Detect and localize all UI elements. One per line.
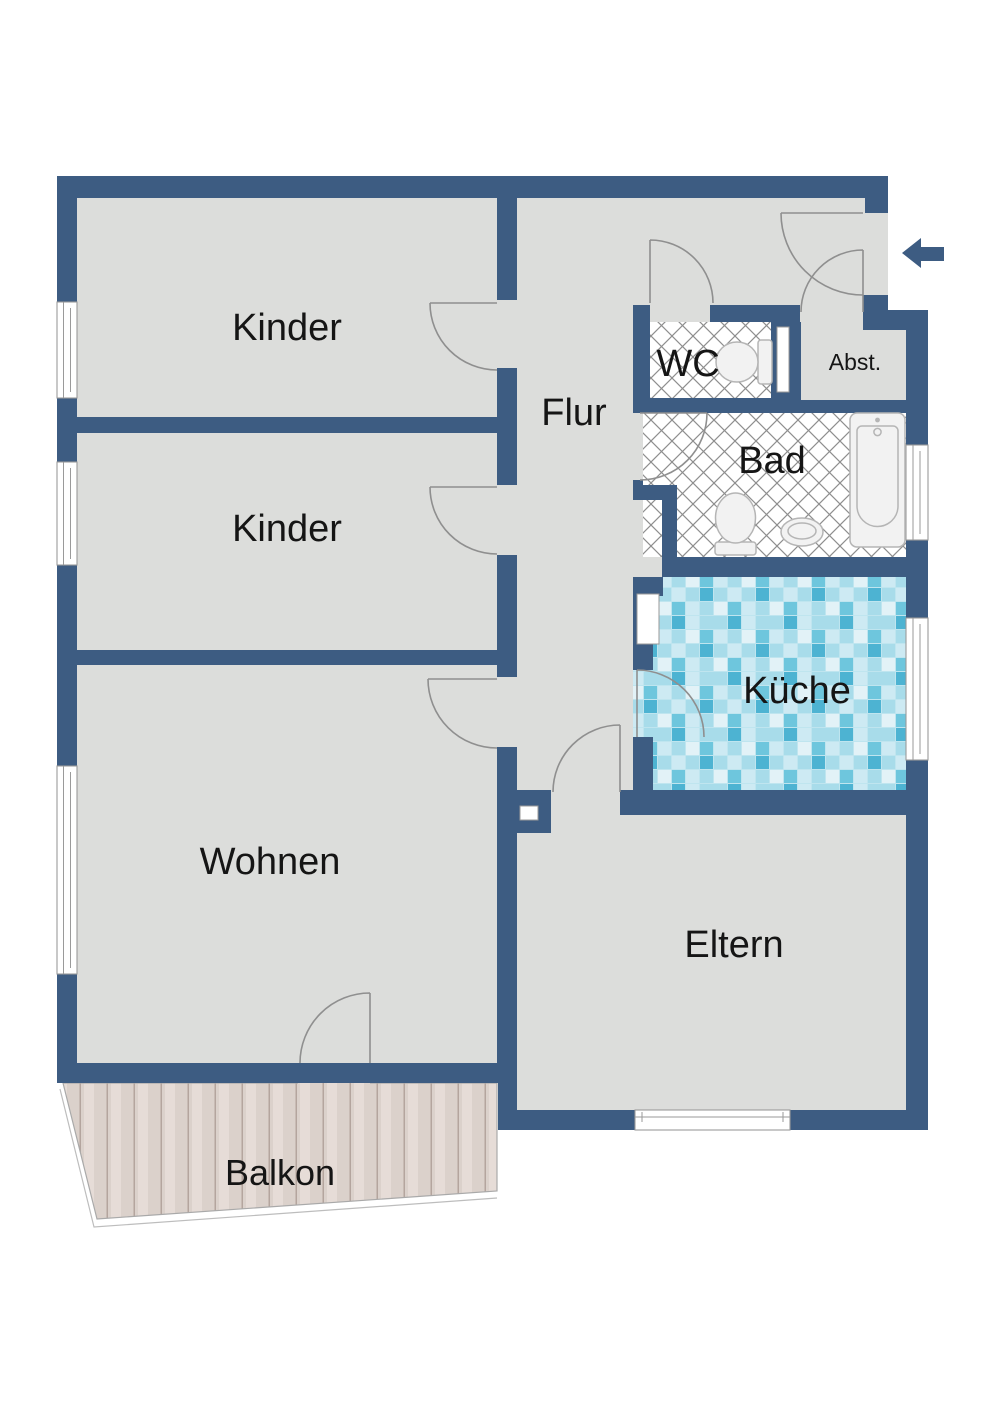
wc-abst-duct: [777, 327, 789, 392]
bad-window: [906, 445, 928, 540]
wc-door-gap: [650, 305, 710, 322]
room-label-eltern: Eltern: [684, 924, 783, 966]
bad-corner-step-v: [662, 500, 677, 557]
entrance-step-block: [863, 295, 888, 330]
entrance-threshold: [865, 213, 888, 295]
entrance-pillar: [867, 198, 888, 213]
entry-hall-floor: [517, 198, 865, 305]
kueche-wall-niche: [637, 594, 659, 644]
bad-corner-step-h: [633, 485, 677, 500]
floor-plan-page: Kinder Kinder Flur WC Abst. Bad Küche Wo…: [0, 0, 1000, 1416]
shaft-opening: [520, 806, 538, 820]
washbasin-icon: [781, 518, 823, 546]
eltern-door-gap: [551, 790, 620, 815]
wohnen-window: [57, 766, 77, 974]
eltern-window: [635, 1110, 790, 1130]
bathtub-icon: [850, 413, 905, 547]
wohnen-door-gap: [497, 677, 517, 747]
room-label-wohnen: Wohnen: [200, 841, 341, 883]
room-label-flur: Flur: [541, 392, 607, 434]
room-label-wc: WC: [656, 343, 719, 385]
entrance-step-ledge: [887, 310, 928, 330]
toilet-bad-icon: [715, 493, 756, 555]
room-label-abst: Abst.: [829, 349, 881, 375]
abst-door-gap: [800, 305, 863, 322]
bad-door-gap: [633, 413, 643, 480]
kinder1-door-gap: [497, 300, 517, 368]
kinder1-window: [57, 302, 77, 398]
balcony-deck: [63, 1083, 497, 1219]
room-label-kinder2: Kinder: [232, 508, 342, 550]
room-label-kueche: Küche: [743, 670, 851, 712]
balcony: [60, 1063, 497, 1227]
floor-plan-drawing: Kinder Kinder Flur WC Abst. Bad Küche Wo…: [0, 0, 1000, 1416]
kinder2-door-gap: [497, 485, 517, 555]
room-label-balkon: Balkon: [225, 1152, 335, 1193]
room-label-bad: Bad: [738, 440, 806, 482]
kueche-corner-piece: [633, 577, 663, 596]
entrance-arrow-icon: [902, 238, 944, 268]
kueche-window: [906, 618, 928, 760]
toilet-wc-icon: [716, 340, 772, 384]
room-label-kinder1: Kinder: [232, 307, 342, 349]
kueche-door-gap: [633, 670, 653, 737]
kinder2-window: [57, 462, 77, 565]
